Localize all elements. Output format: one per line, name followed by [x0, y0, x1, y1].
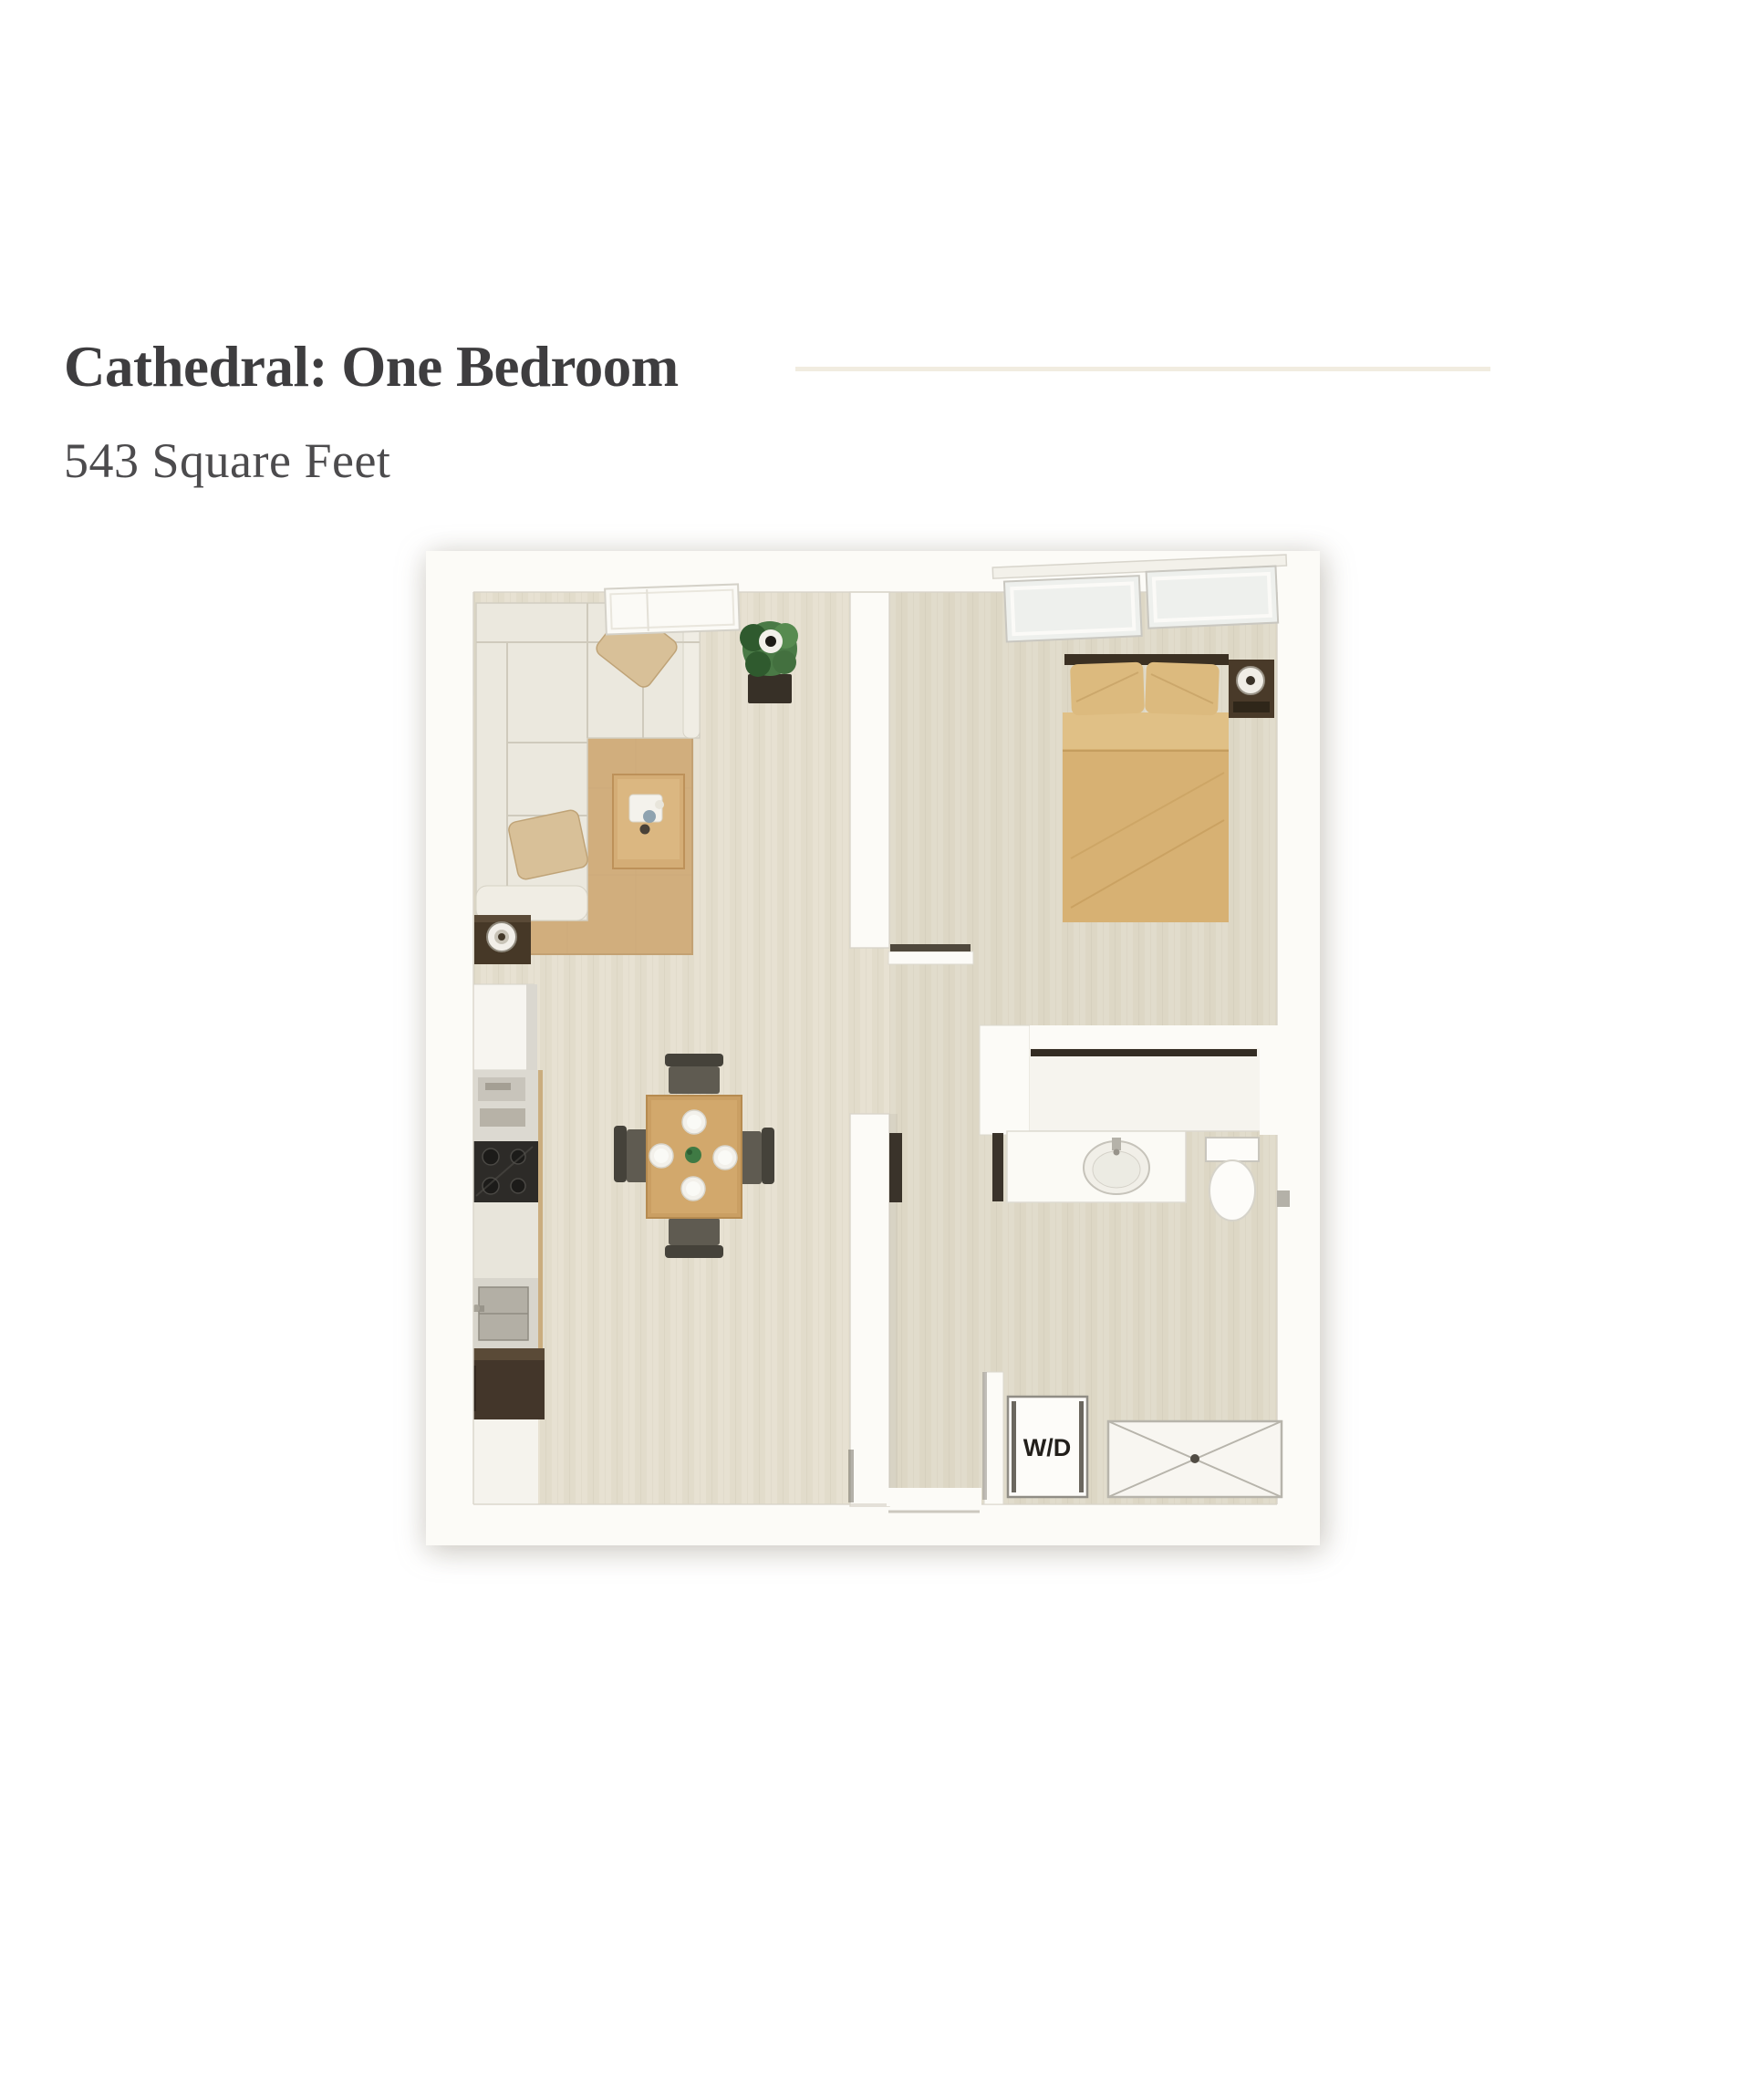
door-handle-icon [1277, 1190, 1290, 1207]
nightstand-icon [1229, 660, 1274, 718]
bed-pillow-icon [1070, 662, 1145, 716]
closet-rod-icon [1031, 1049, 1257, 1056]
central-wall-lower [850, 1114, 889, 1506]
washer-dryer-icon: W/D [1008, 1397, 1087, 1497]
shower-icon [1108, 1421, 1282, 1497]
bedroom-door-icon [888, 944, 973, 964]
kitchen [467, 984, 545, 1504]
vanity-sink-icon [1007, 1131, 1186, 1202]
kitchen-sink-icon [472, 1278, 538, 1348]
bed-icon [1063, 654, 1229, 922]
cooktop-icon [472, 1141, 538, 1202]
counter-icon [472, 1202, 538, 1278]
toilet-icon [1206, 1138, 1259, 1221]
prep-counter-icon [472, 1070, 538, 1141]
page-title: Cathedral: One Bedroom [64, 334, 679, 400]
side-table-icon [474, 915, 531, 964]
dining-table-icon [647, 1096, 742, 1218]
left-wall [426, 551, 473, 1545]
potted-plant-icon [740, 621, 798, 703]
floor-plan: W/D [421, 546, 1323, 1552]
refrigerator-icon [467, 1348, 545, 1419]
floor-plan-image: W/D [421, 546, 1323, 1552]
bathroom-door-edge-icon [889, 1133, 902, 1202]
page-subtitle: 543 Square Feet [64, 432, 390, 489]
bottom-wall [426, 1504, 1320, 1545]
washer-dryer-label: W/D [1023, 1434, 1071, 1461]
central-wall-upper [850, 592, 889, 948]
kitchen-cabinet-icon [472, 984, 534, 1070]
bathroom-door-edge-icon [992, 1133, 1003, 1201]
coffee-table-icon [613, 775, 684, 868]
title-decorative-rule [795, 367, 1490, 371]
base-cabinet-icon [472, 1419, 538, 1504]
living-room-window-icon [605, 584, 740, 634]
headboard-icon [1064, 654, 1229, 665]
